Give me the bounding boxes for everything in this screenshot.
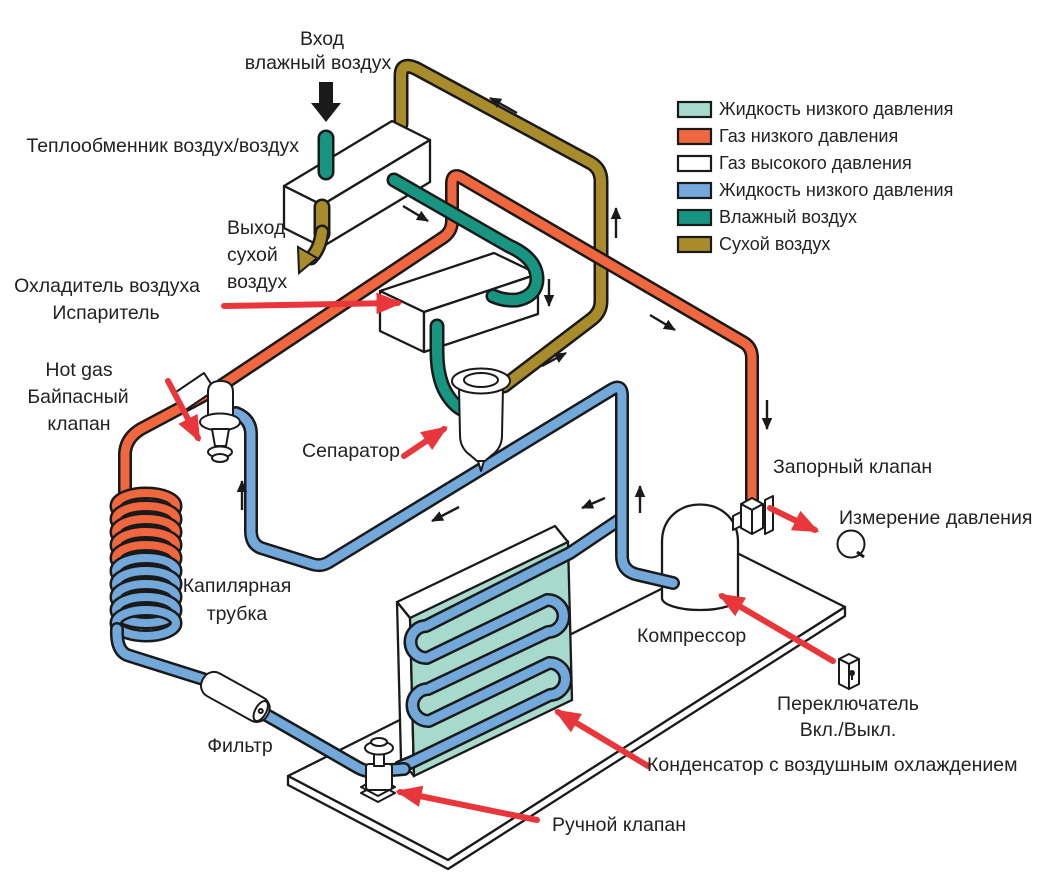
label-filter: Фильтр bbox=[207, 735, 273, 757]
label-bypass-1: Hot gas bbox=[45, 359, 112, 381]
label-shutoff-valve: Запорный клапан bbox=[773, 456, 932, 478]
label-inlet-1: Вход bbox=[300, 28, 345, 50]
label-outlet-3: воздух bbox=[227, 271, 287, 293]
label-outlet-1: Выход bbox=[227, 217, 286, 239]
legend-label-6: Сухой воздух bbox=[719, 234, 830, 254]
capillary-coil bbox=[116, 493, 176, 636]
pressure-gauge bbox=[838, 531, 865, 558]
legend-swatch-6 bbox=[678, 237, 711, 252]
legend-label-5: Влажный воздух bbox=[719, 207, 857, 227]
label-air-cooler-2: Испаритель bbox=[52, 302, 159, 324]
legend-swatch-3 bbox=[678, 156, 711, 171]
label-manual-valve: Ручной клапан bbox=[552, 814, 686, 836]
legend-swatch-4 bbox=[678, 183, 711, 198]
legend-swatch-5 bbox=[678, 210, 711, 225]
label-pressure: Измерение давления bbox=[839, 507, 1032, 529]
manual-valve bbox=[361, 738, 395, 802]
label-capillary-2: трубка bbox=[207, 603, 268, 625]
filter bbox=[197, 668, 274, 727]
label-outlet-2: сухой bbox=[227, 244, 278, 266]
legend-label-3: Газ высокого давления bbox=[719, 153, 912, 173]
shutoff-valve bbox=[733, 496, 773, 534]
legend-label-4: Жидкость низкого давления bbox=[719, 180, 953, 200]
label-inlet-2: влажный воздух bbox=[245, 52, 392, 74]
label-switch-2: Вкл./Выкл. bbox=[800, 719, 897, 741]
label-compressor: Компрессор bbox=[637, 625, 746, 647]
legend-swatch-2 bbox=[678, 129, 711, 144]
inlet-arrow bbox=[311, 82, 341, 122]
label-heat-exchanger: Теплообменник воздух/воздух bbox=[26, 135, 299, 157]
compressor bbox=[662, 505, 738, 611]
label-separator: Сепаратор bbox=[302, 440, 400, 462]
bypass-valve bbox=[173, 373, 240, 462]
legend-label-1: Жидкость низкого давления bbox=[719, 99, 953, 119]
label-capillary-1: Капилярная bbox=[183, 575, 292, 597]
diagram-canvas: Вход влажный воздух Теплообменник воздух… bbox=[0, 0, 1058, 888]
legend-swatch-1 bbox=[678, 102, 711, 117]
label-bypass-3: клапан bbox=[47, 413, 110, 435]
dryer-schematic: Вход влажный воздух Теплообменник воздух… bbox=[0, 0, 1058, 888]
label-switch-1: Переключатель bbox=[777, 693, 919, 715]
label-condenser: Конденсатор с воздушным охлаждением bbox=[647, 754, 1018, 776]
label-air-cooler-1: Охладитель воздуха bbox=[14, 275, 200, 297]
legend-label-2: Газ низкого давления bbox=[719, 126, 898, 146]
power-switch bbox=[839, 654, 859, 689]
legend: Жидкость низкого давления Газ низкого да… bbox=[678, 99, 953, 254]
label-bypass-2: Байпасный bbox=[27, 386, 128, 408]
